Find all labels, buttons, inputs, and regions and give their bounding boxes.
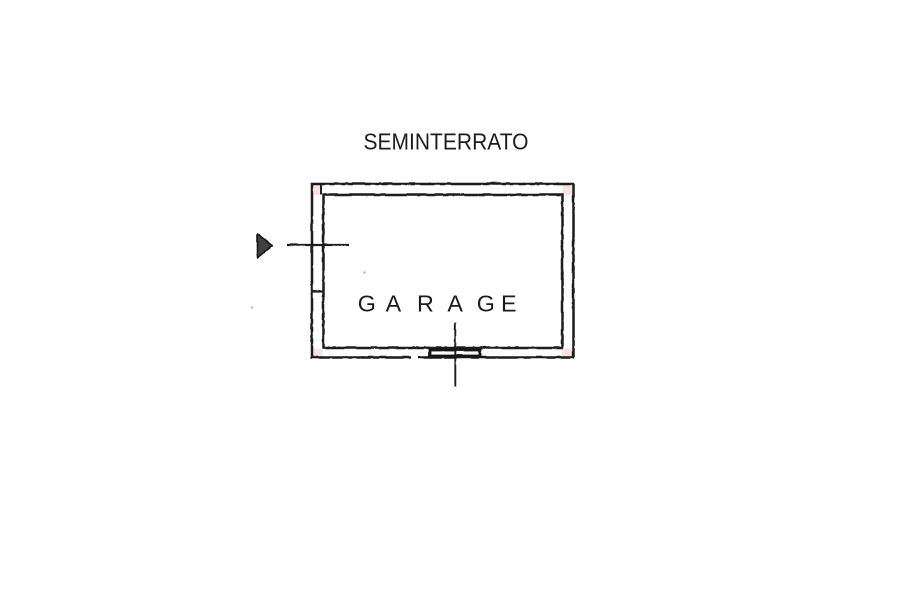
svg-text:SEMINTERRATO: SEMINTERRATO xyxy=(364,129,529,155)
svg-text:A: A xyxy=(447,291,463,317)
svg-text:A: A xyxy=(386,291,402,317)
svg-text:E: E xyxy=(501,291,517,317)
svg-text:G: G xyxy=(358,291,376,317)
svg-text:G: G xyxy=(477,291,495,317)
svg-text:R: R xyxy=(417,291,434,317)
